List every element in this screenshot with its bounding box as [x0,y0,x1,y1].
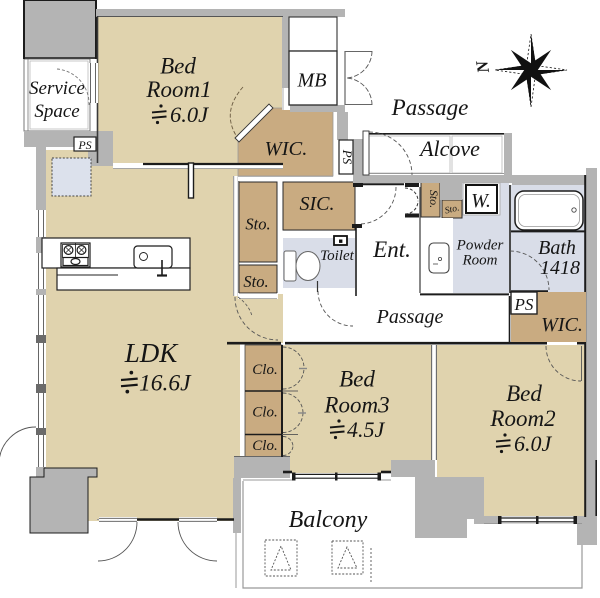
svg-text:4.5J: 4.5J [347,417,386,442]
svg-text:6.0J: 6.0J [170,102,209,127]
svg-text:Bath: Bath [538,237,576,259]
svg-text:PS: PS [514,295,534,314]
svg-text:Bed: Bed [160,54,196,79]
svg-text:Alcove: Alcove [418,136,480,161]
svg-text:Sto.: Sto. [245,215,270,234]
svg-text:Ent.: Ent. [372,237,411,262]
svg-text:Balcony: Balcony [289,507,368,533]
svg-text:PS: PS [340,149,355,165]
svg-text:6.0J: 6.0J [514,431,553,456]
svg-text:Room: Room [462,253,498,269]
svg-text:SIC.: SIC. [300,193,335,215]
svg-text:Passage: Passage [391,95,469,120]
svg-text:Toilet: Toilet [320,248,354,264]
svg-text:Room2: Room2 [489,406,555,431]
svg-text:Room3: Room3 [323,393,389,418]
svg-text:WIC.: WIC. [541,314,583,336]
svg-text:LDK: LDK [124,338,180,368]
svg-text:Clo.: Clo. [252,362,277,378]
svg-text:Service: Service [29,78,85,99]
svg-text:1418: 1418 [540,257,580,279]
svg-text:WIC.: WIC. [265,138,308,160]
svg-text:Bed: Bed [339,367,375,392]
svg-text:Clo.: Clo. [252,438,277,454]
svg-text:PS: PS [77,138,91,152]
svg-text:Passage: Passage [376,306,444,328]
svg-text:Sto.: Sto. [243,272,268,291]
svg-text:Clo.: Clo. [252,405,277,421]
svg-text:Space: Space [34,101,79,122]
svg-text:Room1: Room1 [145,77,211,102]
svg-text:Sto.: Sto. [427,190,441,208]
svg-text:Bed: Bed [506,381,542,406]
svg-text:W.: W. [471,190,491,212]
svg-text:16.6J: 16.6J [139,371,192,397]
svg-text:Powder: Powder [456,238,504,254]
svg-text:MB: MB [297,70,327,92]
